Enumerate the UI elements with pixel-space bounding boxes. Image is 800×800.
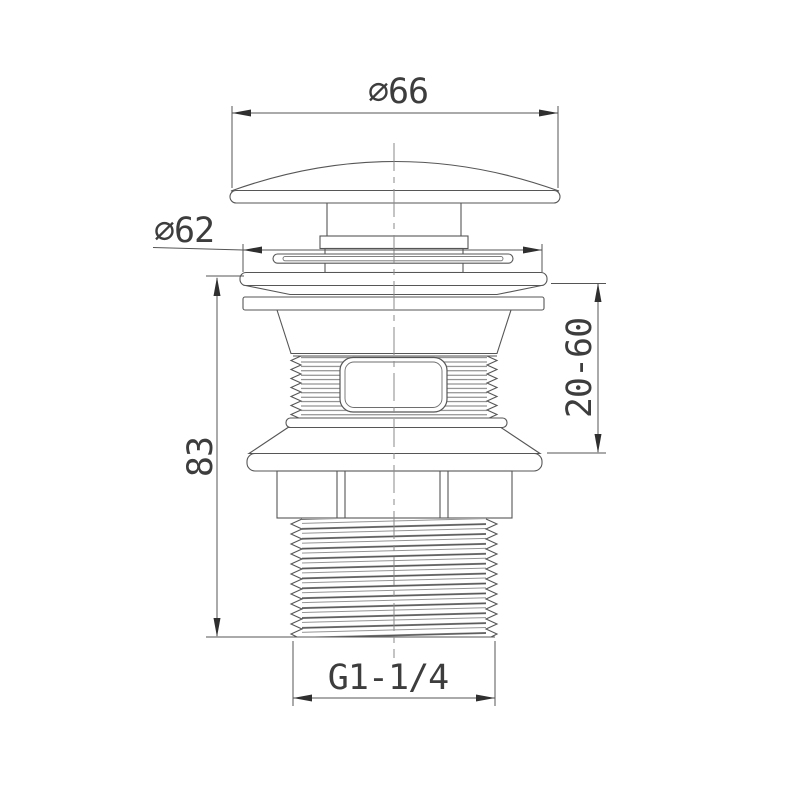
dim66-label: ∅66 (368, 72, 428, 112)
dim83-arrow-top (214, 277, 221, 296)
cap-assembly (230, 162, 560, 204)
dim83-label: 83 (181, 437, 221, 477)
cap-rim (230, 191, 560, 204)
thread-runout-lip (286, 418, 507, 428)
cap-dome (231, 162, 559, 192)
top-gasket (273, 254, 513, 263)
drawing-canvas: ∅66 ∅62 83 20-60 G1-1/4 (0, 0, 800, 800)
dim2060-label: 20-60 (560, 318, 600, 418)
dim62-label: ∅62 (154, 211, 214, 251)
dim66-arrow-left (232, 110, 251, 117)
dimthread-arrow-left (293, 695, 312, 702)
upper-thread-right-crests (487, 356, 497, 419)
lower-thread-left-crests (291, 519, 302, 637)
upper-thread-left-crests (291, 356, 301, 419)
dim62-arrow-right (523, 247, 542, 254)
technical-drawing: ∅66 ∅62 83 20-60 G1-1/4 (0, 0, 800, 800)
dim2060-arrow-bottom (595, 434, 602, 453)
dim-clamping-range: 20-60 (547, 283, 606, 453)
dimthread-arrow-right (476, 695, 495, 702)
gasket-outer (273, 254, 513, 263)
dimthread-label: G1-1/4 (328, 658, 448, 698)
dim62-arrow-left (243, 247, 262, 254)
dim66-arrow-right (539, 110, 558, 117)
dim2060-arrow-top (595, 283, 602, 302)
dim83-arrow-bottom (214, 618, 221, 637)
lower-thread-right-crests (486, 519, 497, 637)
